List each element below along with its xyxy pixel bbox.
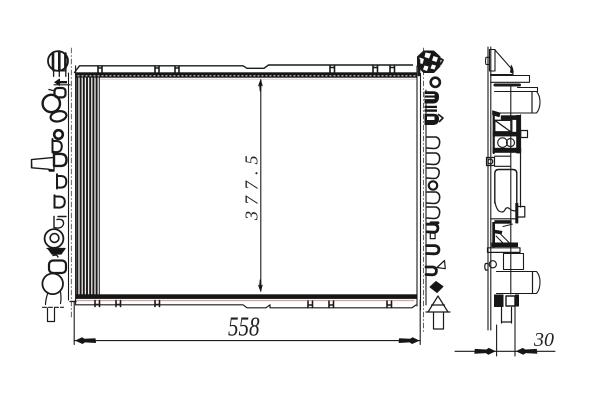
svg-text:377.5: 377.5 [242,150,262,222]
svg-text:558: 558 [228,312,260,342]
svg-text:30: 30 [533,329,554,351]
